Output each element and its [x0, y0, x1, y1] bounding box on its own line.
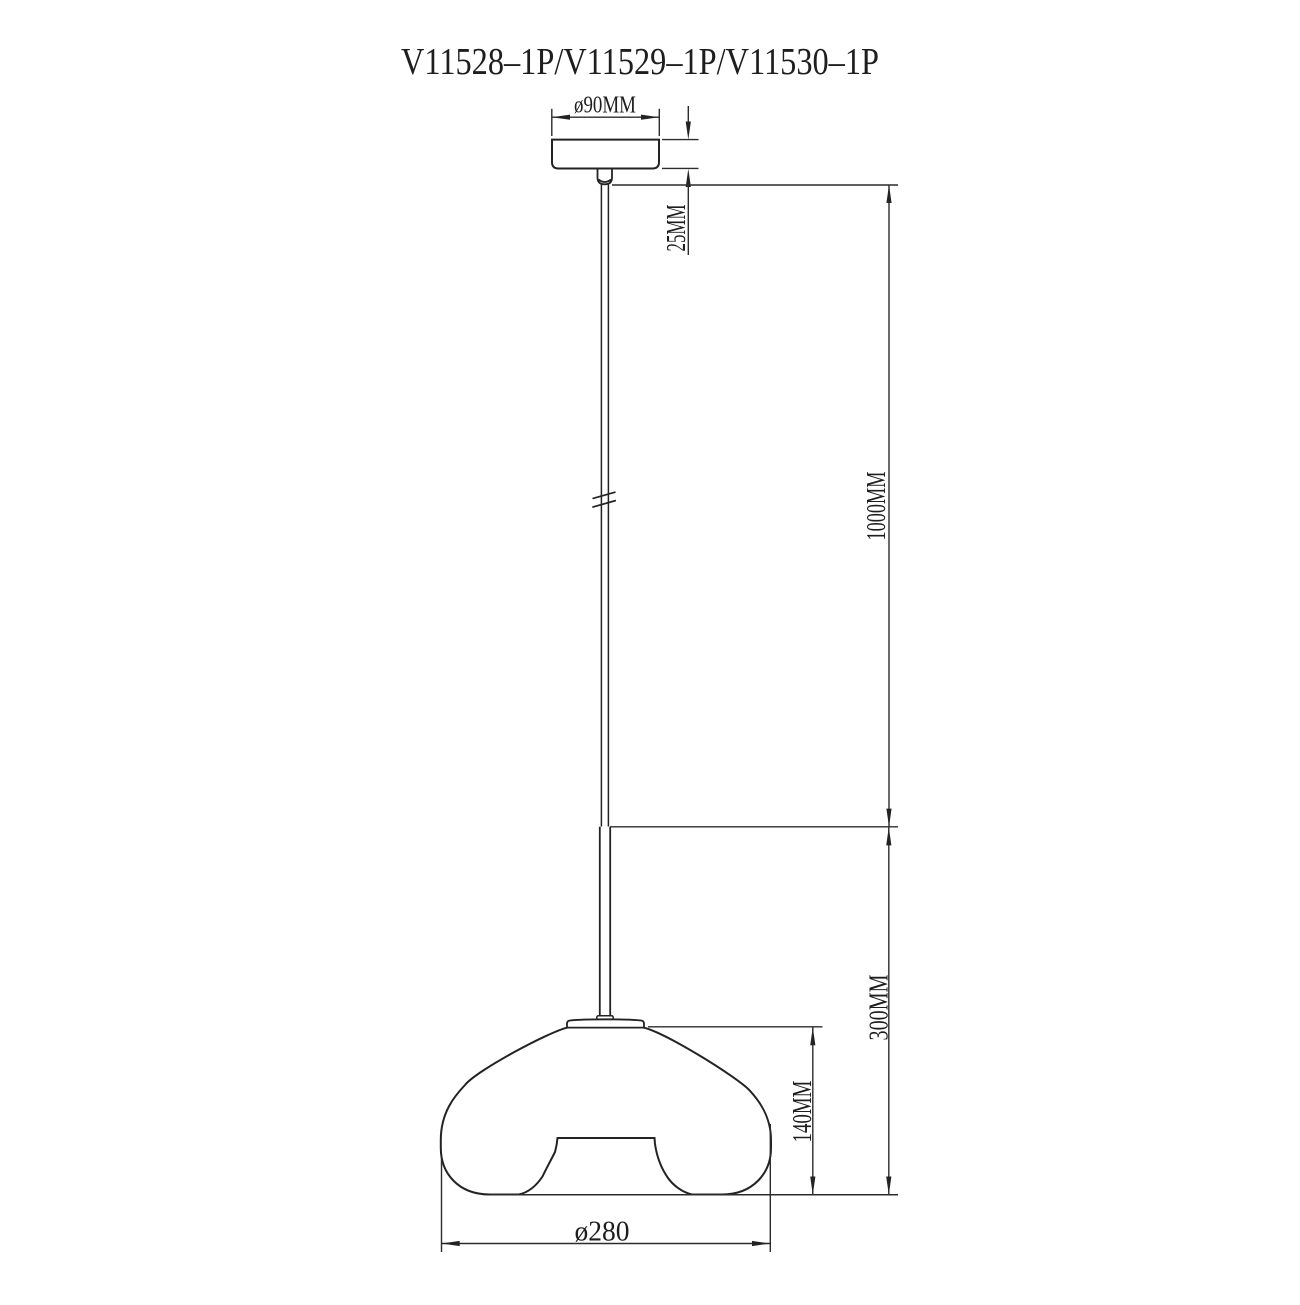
svg-text:1000MM: 1000MM [861, 472, 891, 541]
svg-text:140MM: 140MM [787, 1081, 817, 1143]
svg-text:ø90MM: ø90MM [574, 93, 636, 119]
svg-text:V11528–1P/V11529–1P/V11530–1P: V11528–1P/V11529–1P/V11530–1P [401, 41, 879, 83]
svg-text:25MM: 25MM [661, 205, 691, 252]
svg-text:300MM: 300MM [864, 975, 894, 1041]
svg-text:ø280: ø280 [575, 1217, 630, 1248]
